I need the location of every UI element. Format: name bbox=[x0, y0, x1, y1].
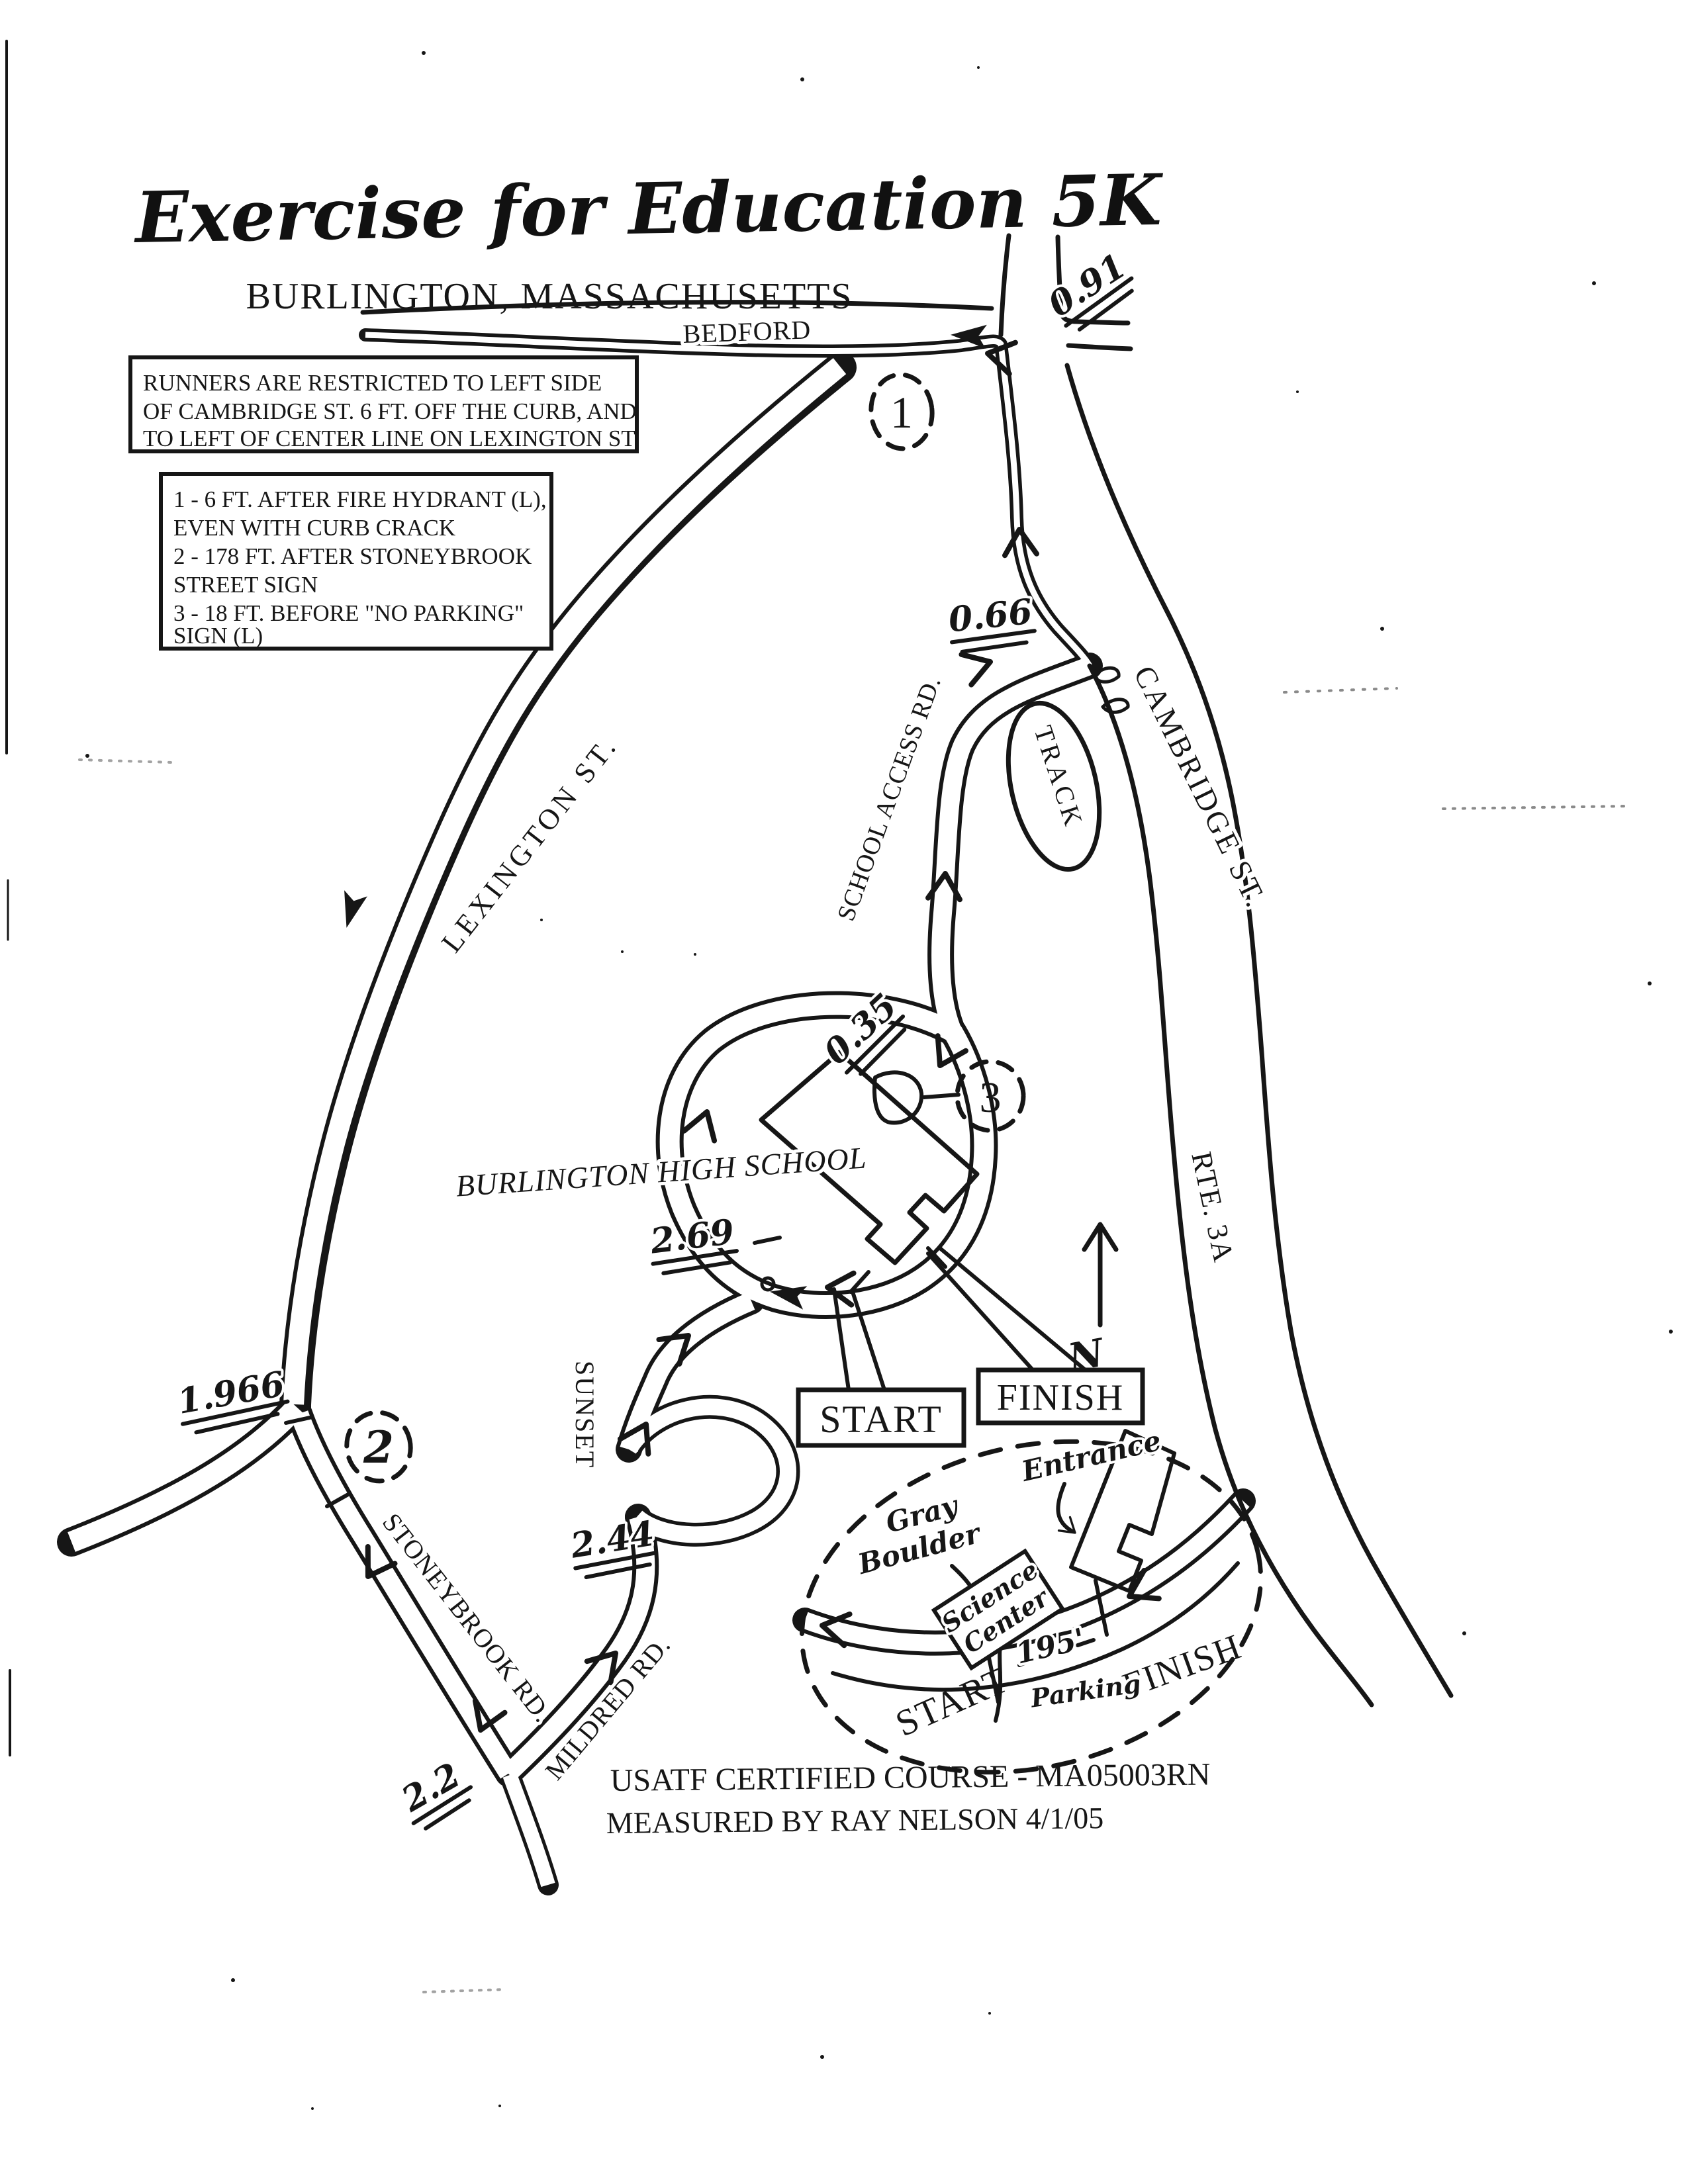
measured-by-line: MEASURED BY RAY NELSON 4/1/05 bbox=[606, 1801, 1104, 1840]
checkpoint-1-number: 1 bbox=[890, 387, 913, 437]
edge-east-leg-bottom bbox=[1068, 345, 1131, 349]
checkpoint-3-number: 3 bbox=[980, 1073, 1002, 1122]
label-rte-3a: RTE. 3A bbox=[1185, 1149, 1240, 1266]
tick-269 bbox=[755, 1238, 780, 1243]
landmark-line-2: EVEN WITH CURB CRACK bbox=[173, 515, 455, 541]
restriction-line-2: OF CAMBRIDGE ST. 6 FT. OFF THE CURB, AND bbox=[143, 398, 637, 424]
course-map-page: 1 2 3 0.91 0.66 0.35 2.69 1.966 bbox=[0, 0, 1688, 2184]
edge-cambridge-right bbox=[1067, 365, 1451, 1696]
arrow-loop-west bbox=[684, 1107, 722, 1141]
inset-entrance-label: Entrance bbox=[1018, 1424, 1164, 1488]
restriction-line-1: RUNNERS ARE RESTRICTED TO LEFT SIDE bbox=[143, 370, 602, 396]
edge-east-leg-top bbox=[1078, 322, 1128, 323]
header: Exercise for Education 5K BURLINGTON, MA… bbox=[132, 158, 1164, 317]
label-bedford: BEDFORD bbox=[682, 314, 812, 349]
checkpoint-1: 1 bbox=[867, 371, 935, 451]
inset-start-label: START bbox=[890, 1659, 1015, 1745]
finish-label: FINISH bbox=[997, 1377, 1124, 1418]
footer: USATF CERTIFIED COURSE - MA05003RN MEASU… bbox=[606, 1757, 1211, 1840]
mile-marker-066: 0.66 bbox=[947, 592, 1036, 653]
restriction-note-box: RUNNERS ARE RESTRICTED TO LEFT SIDE OF C… bbox=[130, 357, 639, 451]
course-map-canvas: 1 2 3 0.91 0.66 0.35 2.69 1.966 bbox=[0, 0, 1688, 2184]
finish-area-inset: Science Center Entrance Gray Boulder 195… bbox=[767, 1395, 1296, 1819]
page-subtitle: BURLINGTON, MASSACHUSETTS bbox=[246, 276, 853, 317]
restriction-line-3: TO LEFT OF CENTER LINE ON LEXINGTON ST. bbox=[143, 426, 639, 451]
label-school-access: SCHOOL ACCESS RD. bbox=[832, 672, 947, 925]
landmark-note-box: 1 - 6 FT. AFTER FIRE HYDRANT (L), EVEN W… bbox=[161, 474, 551, 649]
checkpoint-2: 2 bbox=[340, 1406, 417, 1487]
finish-callout: FINISH bbox=[978, 1370, 1143, 1423]
mile-marker-269: 2.69 bbox=[647, 1212, 738, 1275]
pond-blob bbox=[874, 1072, 921, 1122]
certification-line: USATF CERTIFIED COURSE - MA05003RN bbox=[610, 1757, 1211, 1798]
landmark-line-6: SIGN (L) bbox=[173, 623, 263, 649]
landmark-line-4: STREET SIGN bbox=[173, 572, 318, 598]
edge-cambridge-north-left bbox=[1001, 236, 1009, 335]
checkpoint3-pointer bbox=[924, 1095, 959, 1097]
start-callout: START bbox=[798, 1390, 964, 1445]
label-lexington: LEXINGTON ST. bbox=[435, 729, 624, 959]
label-sunset: SUNSET bbox=[570, 1361, 600, 1469]
start-label: START bbox=[820, 1398, 943, 1441]
landmark-line-1: 1 - 6 FT. AFTER FIRE HYDRANT (L), bbox=[173, 486, 547, 512]
landmark-line-3: 2 - 178 FT. AFTER STONEYBROOK bbox=[173, 543, 532, 569]
arrow-lexington-lower bbox=[335, 890, 367, 931]
road-edge-lines bbox=[306, 236, 1451, 1705]
inset-entrance-arrow-line bbox=[1058, 1484, 1072, 1531]
mile-marker-22: 2.2 bbox=[393, 1752, 477, 1832]
checkpoint-2-number: 2 bbox=[363, 1422, 394, 1473]
